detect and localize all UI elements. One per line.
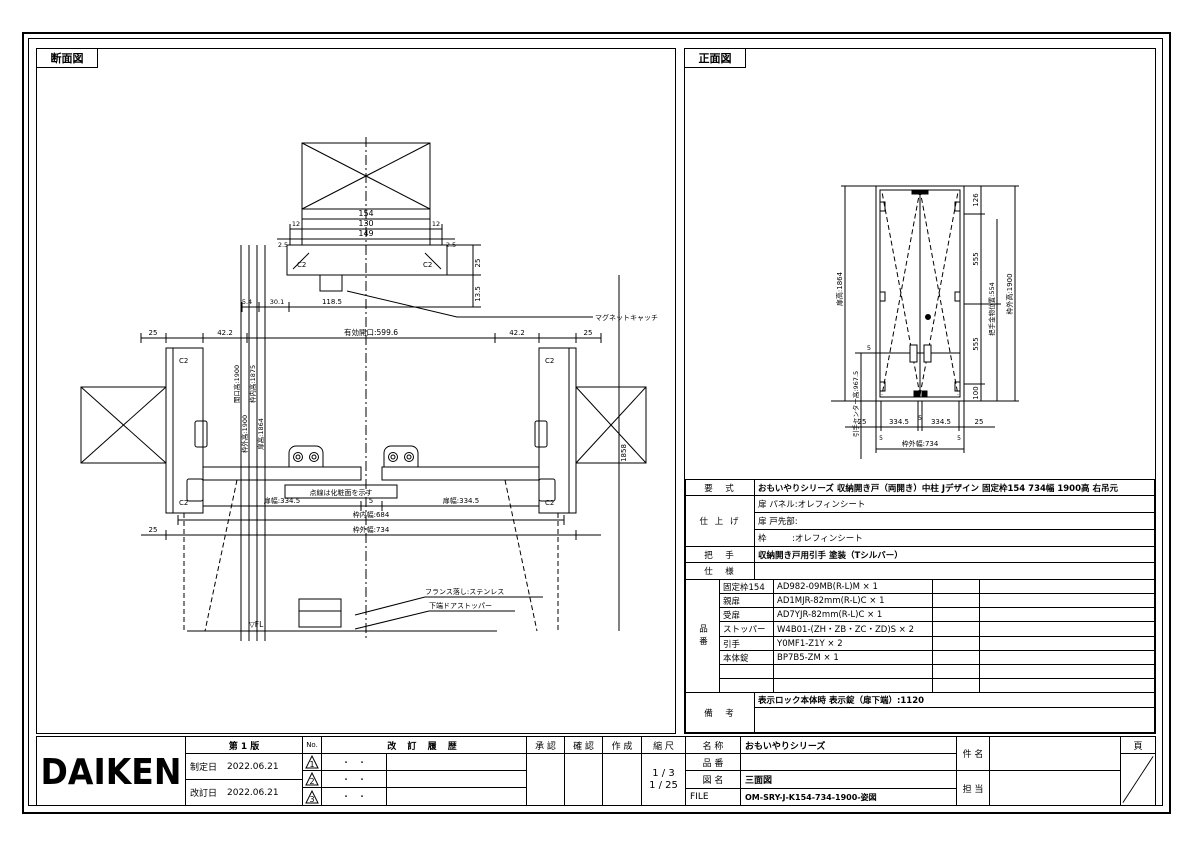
c2-label-4: C2 xyxy=(179,499,188,507)
scale-value-2: 1 / 25 xyxy=(649,780,678,791)
c2-label-1: C2 xyxy=(297,261,306,269)
established-cell: 制定日2022.06.21 xyxy=(185,753,303,780)
revised-label: 改訂日 xyxy=(190,786,217,799)
scale-cell: 1 / 3 1 / 25 xyxy=(641,753,686,806)
scale-header: 縮 尺 xyxy=(641,736,686,754)
c2-label-3: C2 xyxy=(179,357,188,365)
vdim-frame-in-h: 枠内高:1875 xyxy=(248,365,257,403)
dim-25-mid-left: 25 xyxy=(149,329,158,337)
dim-13-5: 13.5 xyxy=(474,286,482,302)
door-leaf-right xyxy=(382,467,539,480)
vdim-opening-h: 開口高:1900 xyxy=(232,365,241,403)
dim-gap-5: 5 xyxy=(369,497,373,505)
dotted-note: 点線は化粧面を示す xyxy=(310,488,373,497)
section-view-title: 断面図 xyxy=(37,49,98,68)
daiken-logo: DAIKEN xyxy=(41,750,182,792)
history-header: 改 訂 履 歴 xyxy=(321,736,527,754)
dim-outer-width: 枠外幅:734 xyxy=(353,525,390,534)
created-header: 作 成 xyxy=(602,736,642,754)
part-number: BP7B5-ZM × 1 xyxy=(773,650,933,665)
subject-label: 件 名 xyxy=(956,736,990,771)
history-row: ・ ・ xyxy=(321,787,527,806)
spec-model-label: 要 式 xyxy=(685,479,755,496)
front-dim-126: 126 xyxy=(972,193,980,207)
name-label: 名 称 xyxy=(685,736,741,754)
dim-12-right: 12 xyxy=(432,220,440,228)
person-value xyxy=(989,770,1121,806)
established-date: 2022.06.21 xyxy=(227,762,279,772)
front-dim-5: 5 xyxy=(867,344,871,352)
dim-opening: 有効開口:599.6 xyxy=(344,327,398,337)
part-qty xyxy=(932,593,980,608)
part-number: AD1MJR-82mm(R-L)C × 1 xyxy=(773,593,933,608)
svg-text:2: 2 xyxy=(309,777,314,786)
spec-parts-label: 品番 xyxy=(685,579,720,693)
part-no-label: 品 番 xyxy=(685,753,741,771)
history-row: ・ ・ xyxy=(321,753,527,771)
dim-25-bottom: 25 xyxy=(149,526,158,534)
part-note xyxy=(979,664,1155,679)
spec-model-value: おもいやりシリーズ 収納開き戸（両開き）中柱 Jデザイン 固定枠154 734幅… xyxy=(754,479,1155,496)
dim-30-1: 30.1 xyxy=(270,298,284,306)
established-label: 制定日 xyxy=(190,760,217,773)
spec-finish-row: 扉 戸先部: xyxy=(754,512,1155,530)
file-value: OM-SRY-J-K154-734-1900-姿図 xyxy=(740,788,957,806)
svg-text:1: 1 xyxy=(309,760,314,769)
drawing-sheet: 断面図 xyxy=(0,0,1191,842)
part-note xyxy=(979,650,1155,665)
spec-remarks-empty xyxy=(754,707,1155,733)
part-qty xyxy=(932,579,980,594)
part-qty xyxy=(932,664,980,679)
front-dim-25-right: 25 xyxy=(975,418,984,426)
drawing-name-value: 三面図 xyxy=(740,770,957,789)
fold-hinge-left xyxy=(289,446,323,467)
section-view-drawing: 154 130 149 12 12 2.5 2.5 C2 C2 25 13.5 … xyxy=(37,49,675,733)
part-note xyxy=(979,636,1155,651)
front-dim-25-left: 25 xyxy=(858,418,867,426)
page-cell xyxy=(1120,753,1156,806)
front-view-panel: 正面図 xyxy=(684,48,1156,734)
dim-2-5-right: 2.5 xyxy=(446,241,456,249)
front-handle-height: 引手センター高:967.5 xyxy=(851,371,860,437)
vdim-1858: 1858 xyxy=(620,444,628,462)
logo-cell: DAIKEN xyxy=(36,736,186,806)
scale-value-1: 1 / 3 xyxy=(652,768,674,779)
front-dim-555-bottom: 555 xyxy=(972,337,980,350)
part-number xyxy=(773,664,933,679)
door-leaf-left xyxy=(203,467,361,480)
dim-42-2-right: 42.2 xyxy=(509,329,525,337)
c2-label-5: C2 xyxy=(545,357,554,365)
front-dim-554: 把手金物位置:554 xyxy=(987,282,996,336)
part-number: Y0MF1-Z1Y × 2 xyxy=(773,636,933,651)
part-name: 本体錠 xyxy=(719,650,774,665)
part-qty xyxy=(932,650,980,665)
c2-label-2: C2 xyxy=(423,261,432,269)
part-number: W4B01-(ZH・ZB・ZC・ZD)S × 2 xyxy=(773,621,933,637)
vdim-door-h: 扉高:1864 xyxy=(256,418,265,450)
drawing-name-label: 図 名 xyxy=(685,770,741,789)
spec-finish-row: 枠 :オレフィンシート xyxy=(754,529,1155,547)
front-view-drawing: 扉高:1864 引手センター高:967.5 5 126 555 把手金物位置:5… xyxy=(685,49,1155,479)
part-note xyxy=(979,607,1155,622)
spec-spec-value xyxy=(754,562,1155,580)
revision-triangle-icon: 2 xyxy=(305,772,319,786)
front-dim-5-center: 5 xyxy=(918,415,922,422)
dim-5-4: 5.4 xyxy=(242,298,252,306)
fl-mark: ▽FL xyxy=(249,620,264,629)
spec-remarks-label: 備 考 xyxy=(685,692,755,733)
checked-cell xyxy=(564,753,603,806)
history-row: ・ ・ xyxy=(321,770,527,788)
part-name: 固定枠154 xyxy=(719,579,774,594)
left-jamb xyxy=(166,348,203,513)
part-number: AD7YJR-82mm(R-L)C × 1 xyxy=(773,607,933,622)
revised-cell: 改訂日2022.06.21 xyxy=(185,779,303,806)
front-dim-5b: 5 xyxy=(957,435,961,442)
history-date: ・ ・ xyxy=(322,771,387,787)
spec-remarks-note: 表示ロック本体時 表示錠（扉下端）:1120 xyxy=(754,692,1155,708)
dim-130: 130 xyxy=(358,219,373,228)
history-date: ・ ・ xyxy=(322,788,387,805)
stopper-label: 下端ドアストッパー xyxy=(429,601,492,610)
part-name: 親扉 xyxy=(719,593,774,608)
floor-hardware xyxy=(299,599,341,627)
dim-12-left: 12 xyxy=(292,220,300,228)
file-label: FILE xyxy=(685,788,741,806)
vdim-frame-out-h: 枠外高:1900 xyxy=(240,415,249,453)
dim-inner-width: 枠内幅:684 xyxy=(353,510,390,519)
part-number: AD982-09MB(R-L)M × 1 xyxy=(773,579,933,594)
front-dim-5a: 5 xyxy=(879,435,883,442)
spec-handle-label: 把 手 xyxy=(685,546,755,563)
name-value: おもいやりシリーズ xyxy=(740,736,957,754)
page-diagonal-line xyxy=(1121,754,1155,805)
history-date: ・ ・ xyxy=(322,754,387,770)
part-name: ストッパー xyxy=(719,621,774,637)
checked-header: 確 認 xyxy=(564,736,603,754)
part-qty xyxy=(932,607,980,622)
part-note xyxy=(979,593,1155,608)
front-door-height: 扉高:1864 xyxy=(835,271,844,306)
created-cell xyxy=(602,753,642,806)
part-name xyxy=(719,664,774,679)
revision-triangle-icon: 3 xyxy=(305,790,319,804)
dim-25-mid-right: 25 xyxy=(584,329,593,337)
part-note xyxy=(979,621,1155,637)
section-view-panel: 断面図 xyxy=(36,48,676,734)
dim-154: 154 xyxy=(358,209,373,218)
front-dim-555-top: 555 xyxy=(972,252,980,265)
subject-value xyxy=(989,736,1121,771)
approved-header: 承 認 xyxy=(526,736,565,754)
approved-cell xyxy=(526,753,565,806)
person-label: 担 当 xyxy=(956,770,990,806)
part-qty xyxy=(932,636,980,651)
spec-finish-label: 仕 上 げ xyxy=(685,495,755,547)
front-view-title: 正面図 xyxy=(685,49,746,68)
dim-2-5-left: 2.5 xyxy=(278,241,288,249)
dim-149: 149 xyxy=(358,229,373,238)
part-name: 引手 xyxy=(719,636,774,651)
dim-leaf-left: 扉幅:334.5 xyxy=(264,496,300,505)
magnet-leader xyxy=(347,291,593,317)
part-note xyxy=(979,579,1155,594)
front-dim-100: 100 xyxy=(972,386,980,399)
part-no-value xyxy=(740,753,957,771)
revision-triangle-icon: 1 xyxy=(305,755,319,769)
front-dim-334-right: 334.5 xyxy=(931,418,951,426)
part-qty xyxy=(932,621,980,637)
rev-mark-cell: 1 xyxy=(302,753,322,771)
rev-mark-cell: 3 xyxy=(302,787,322,806)
edition-cell: 第 1 版 xyxy=(185,736,303,754)
france-drop-label: フランス落し:ステンレス xyxy=(425,587,504,596)
magnet-catch-label: マグネットキャッチ xyxy=(595,313,658,322)
no-header: No. xyxy=(302,736,322,754)
revised-date: 2022.06.21 xyxy=(227,788,279,798)
dim-25-lintel: 25 xyxy=(474,259,482,268)
part-name: 受扉 xyxy=(719,607,774,622)
spec-spec-label: 仕 様 xyxy=(685,562,755,580)
dim-leaf-right: 扉幅:334.5 xyxy=(443,496,479,505)
front-dim-334-left: 334.5 xyxy=(889,418,909,426)
rev-mark-cell: 2 xyxy=(302,770,322,788)
front-outer-height: 枠外高:1900 xyxy=(1005,273,1014,314)
right-jamb xyxy=(539,348,576,513)
dim-42-2-left: 42.2 xyxy=(217,329,233,337)
svg-text:3: 3 xyxy=(309,795,314,804)
c2-label-6: C2 xyxy=(545,499,554,507)
front-outer-width: 枠外幅:734 xyxy=(902,439,939,448)
fold-hinge-right xyxy=(384,446,418,467)
lintel xyxy=(287,245,447,275)
spec-handle-value: 収納開き戸用引手 塗装（Tシルバー） xyxy=(754,546,1155,563)
spec-finish-row: 扉 パネル:オレフィンシート xyxy=(754,495,1155,513)
dim-118-5: 118.5 xyxy=(322,298,342,306)
page-header: 頁 xyxy=(1120,736,1156,754)
